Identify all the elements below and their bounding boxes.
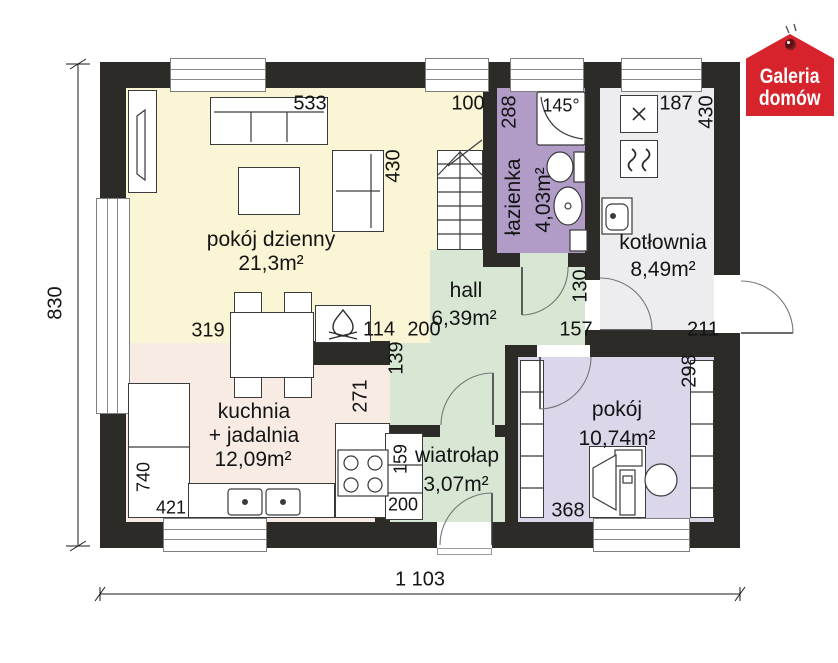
window-kitchen-bottom [163, 518, 267, 552]
wall-bath-bottom [568, 253, 600, 267]
logo-pin-icon [785, 39, 796, 50]
dim-total-height: 830 [45, 286, 68, 319]
dim-100: 100 [451, 93, 484, 116]
staircase [437, 150, 483, 250]
window-line [511, 79, 583, 80]
room-area-bathroom: 4,03m² [532, 167, 556, 232]
room-label-boiler: kotłownia [619, 231, 707, 255]
logo-string [786, 24, 796, 33]
dim-430-top: 430 [696, 95, 719, 128]
window-boiler-top [621, 58, 702, 92]
tv-unit [128, 90, 157, 193]
room-area-boiler: 8,49m² [630, 258, 695, 282]
dining-chair [234, 376, 262, 398]
window-line [622, 79, 701, 80]
dim-368: 368 [551, 500, 584, 523]
wall-bath-right [585, 88, 600, 267]
room-label-hall: hall [450, 279, 483, 303]
window-line [164, 529, 266, 530]
window-left [96, 198, 130, 414]
wall-fireplace-stub [313, 341, 390, 365]
window-line [511, 69, 583, 70]
dim-157: 157 [559, 319, 592, 342]
window-line [622, 69, 701, 70]
window-line [171, 69, 265, 70]
window-bathroom-top [510, 58, 584, 92]
window-bedroom-bottom [593, 518, 690, 552]
dim-430-living: 430 [383, 149, 406, 182]
entrance-threshold [437, 548, 492, 555]
dining-chair [234, 292, 262, 314]
floor-plan: pokój dzienny 21,3m² kuchnia + jadalnia … [0, 0, 838, 663]
dim-200-wardrobe: 200 [388, 495, 418, 516]
dim-319: 319 [191, 320, 224, 343]
window-line [426, 69, 488, 70]
dim-421: 421 [156, 498, 186, 519]
kitchen-counter-right [335, 423, 390, 518]
armchair [332, 150, 384, 232]
galeria-domow-logo: Galeria domów [746, 34, 834, 116]
window-line [594, 539, 689, 540]
room-area-bedroom: 10,74m² [578, 427, 655, 451]
wall-bedroom-left [505, 357, 518, 522]
dim-200-living: 200 [407, 319, 440, 342]
logo-text-line1: Galeria [760, 66, 820, 87]
wall-hall-vestibule [495, 425, 505, 437]
window-living-top [170, 58, 266, 92]
dim-total-width: 1 103 [395, 569, 445, 592]
room-label-kitchen: kuchnia [218, 400, 290, 424]
dim-114: 114 [363, 319, 395, 342]
dim-145deg: 145° [542, 96, 579, 117]
room-area-living: 21,3m² [238, 252, 303, 276]
dim-533: 533 [293, 93, 326, 116]
window-stairs-top [425, 58, 489, 92]
room-label-living: pokój dzienny [207, 228, 335, 252]
dim-159: 159 [391, 444, 412, 474]
wall-bath-bottom [483, 253, 520, 267]
room-label-bathroom: łazienka [502, 158, 526, 235]
wall-bath-left [483, 88, 497, 253]
dim-298: 298 [679, 354, 702, 387]
window-line [171, 79, 265, 80]
room-label-kitchen2: + jadalnia [209, 424, 300, 448]
window-line [164, 539, 266, 540]
room-area-kitchen: 12,09m² [214, 448, 291, 472]
room-area-hall: 6,39m² [431, 307, 496, 331]
window-line [426, 79, 488, 80]
room-label-bedroom: pokój [592, 398, 642, 422]
boiler-heater [620, 140, 658, 178]
dining-table [230, 312, 314, 378]
dim-139: 139 [386, 341, 409, 374]
dim-288: 288 [499, 95, 522, 128]
coffee-table [238, 167, 300, 215]
window-line [117, 199, 118, 413]
dim-271: 271 [350, 379, 373, 412]
dining-chair [284, 292, 312, 314]
room-area-vestibule: 3,07m² [423, 473, 488, 497]
wall-bedroom-top [505, 345, 537, 357]
dining-chair [284, 376, 312, 398]
dim-187: 187 [659, 93, 692, 116]
desk [589, 446, 646, 518]
dim-211: 211 [687, 319, 719, 342]
logo-text-line2: domów [759, 88, 821, 109]
doorway-entrance [437, 522, 492, 548]
bedroom-wardrobe-left [520, 360, 544, 518]
dim-130: 130 [570, 269, 593, 302]
kitchen-counter-bottom [188, 483, 335, 518]
room-label-vestibule: wiatrołap [415, 444, 499, 468]
boiler-appliance [620, 95, 658, 133]
window-line [594, 529, 689, 530]
window-line [107, 199, 108, 413]
dim-740: 740 [134, 462, 155, 492]
